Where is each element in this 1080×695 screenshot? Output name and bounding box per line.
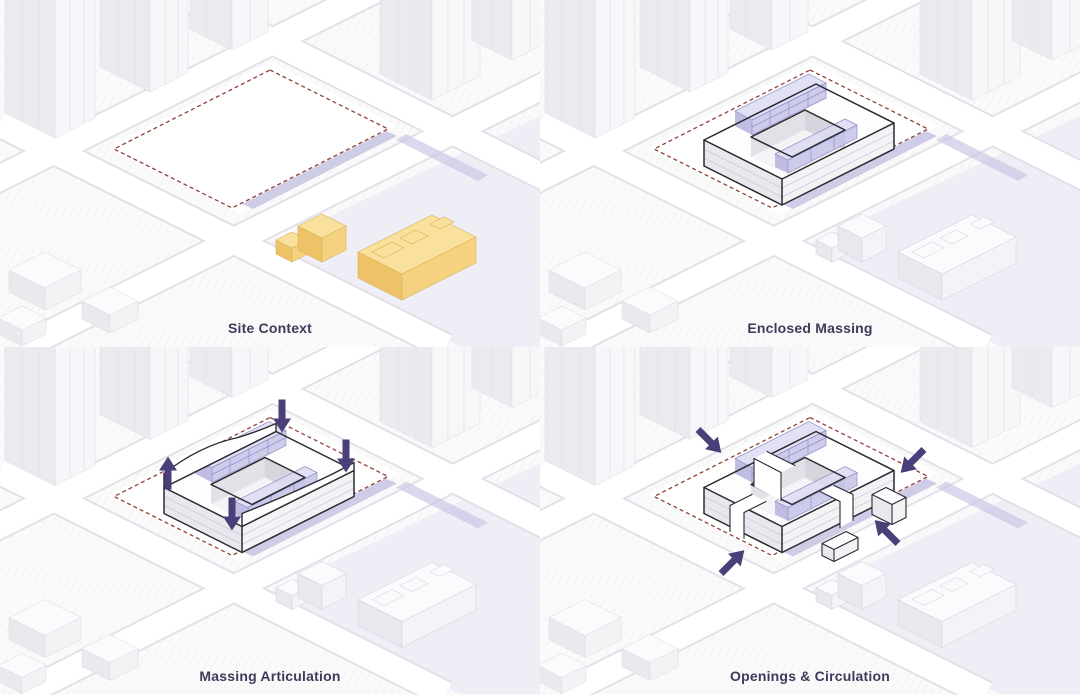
panel-massing-articulation: Massing Articulation bbox=[0, 347, 540, 695]
massing-articulation-diagram bbox=[0, 347, 540, 695]
panel-label-enclosed-massing: Enclosed Massing bbox=[540, 320, 1080, 336]
panel-label-site-context: Site Context bbox=[0, 320, 540, 336]
massing-diagram-grid: Site Context Enclosed Massing Massing Ar… bbox=[0, 0, 1080, 695]
panel-site-context: Site Context bbox=[0, 0, 540, 347]
site-context-diagram bbox=[0, 0, 540, 347]
panel-label-massing-articulation: Massing Articulation bbox=[0, 668, 540, 684]
openings-circulation-diagram bbox=[540, 347, 1080, 695]
panel-enclosed-massing: Enclosed Massing bbox=[540, 0, 1080, 347]
panel-label-openings-circulation: Openings & Circulation bbox=[540, 668, 1080, 684]
enclosed-massing-diagram bbox=[540, 0, 1080, 347]
panel-openings-circulation: Openings & Circulation bbox=[540, 347, 1080, 695]
